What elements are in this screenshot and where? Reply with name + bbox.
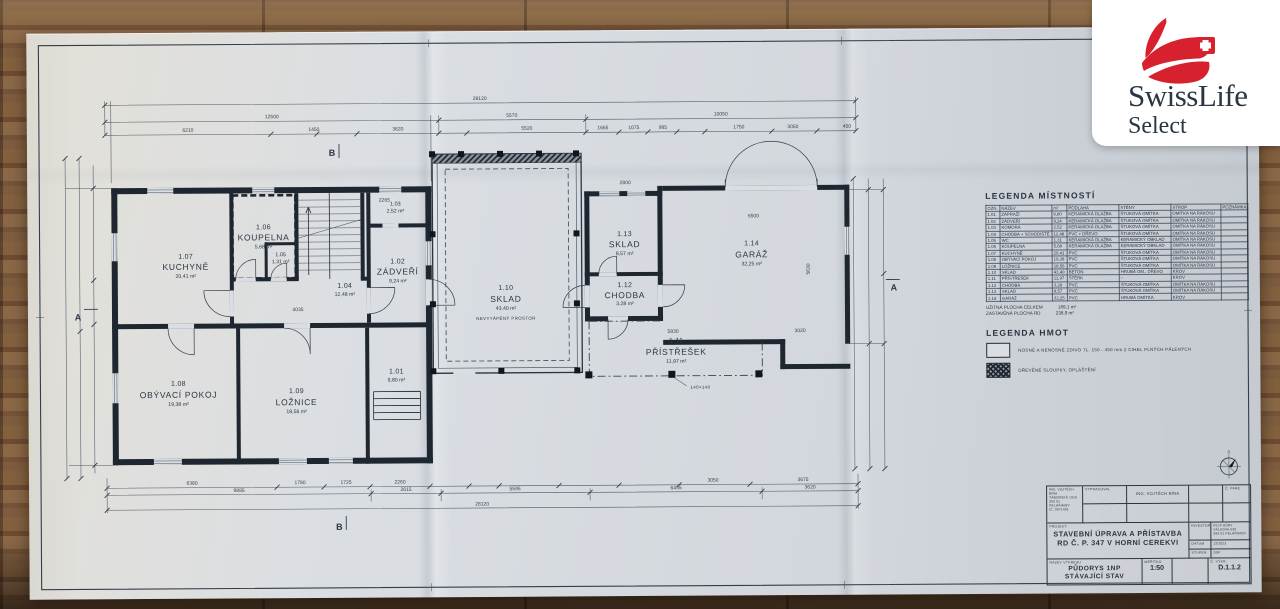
timber-hatch-swatch xyxy=(986,363,1010,378)
datum-label: DATUM xyxy=(1189,541,1211,550)
timber-columns xyxy=(429,150,580,374)
section-b-bottom: B xyxy=(336,522,343,532)
svg-text:9885: 9885 xyxy=(233,488,244,494)
scale-cell: MĚŘÍTKO 1:50 xyxy=(1143,559,1173,584)
svg-text:1,31 m²: 1,31 m² xyxy=(272,259,290,265)
svg-text:KOUPELNA: KOUPELNA xyxy=(238,232,290,242)
vypracoval-label: VYPRACOVAL xyxy=(1083,486,1127,504)
svg-text:GARÁŽ: GARÁŽ xyxy=(735,249,768,259)
datum-value: 12/2023 xyxy=(1211,540,1250,549)
author-box: ING. VOJTĚCH BÍNATÁBORSKÁ 1915393 01 PEL… xyxy=(1047,486,1083,523)
stupen-label: STUPEŇ xyxy=(1189,550,1211,559)
svg-text:9,24 m²: 9,24 m² xyxy=(389,278,407,284)
svg-text:5520: 5520 xyxy=(521,126,532,132)
title-block: ING. VOJTĚCH BÍNATÁBORSKÁ 1915393 01 PEL… xyxy=(1046,484,1252,585)
blueprint-sheet: 28120 12500 5570 10050 6210 1450 3620 55… xyxy=(26,26,1261,600)
svg-text:1.04: 1.04 xyxy=(337,283,352,290)
legend-rooms-table: OZN. NÁZEV m² PODLAHA STĚNY STROP POZNÁM… xyxy=(985,203,1249,301)
svg-text:1780: 1780 xyxy=(294,480,305,486)
svg-text:1665: 1665 xyxy=(597,125,608,131)
legend-room-row: 1.14 GARÁŽ 32,25 PVC HRUBÁ OMÍTKA KROV xyxy=(986,293,1248,301)
svg-text:1075: 1075 xyxy=(628,125,639,131)
north-compass-icon: S xyxy=(1217,449,1241,478)
svg-text:2260: 2260 xyxy=(394,479,405,485)
porch-steps xyxy=(373,391,420,419)
svg-text:SKLAD: SKLAD xyxy=(609,239,640,249)
svg-text:KUCHYNĚ: KUCHYNĚ xyxy=(162,262,209,272)
svg-text:1750: 1750 xyxy=(733,124,744,130)
garage-door-swings xyxy=(725,141,817,188)
svg-text:43,40 m²: 43,40 m² xyxy=(496,306,517,312)
project-cell: PROJEKT: STAVEBNÍ ÚPRAVA A PŘÍSTAVBA RD … xyxy=(1047,523,1189,560)
staircase xyxy=(298,193,361,279)
compass-north-label: S xyxy=(1227,449,1230,454)
drawing-name-cell: NÁZEV VÝKRESU PŮDORYS 1NP STÁVAJÍCÍ STAV xyxy=(1048,559,1143,585)
material-item-masonry: NOSNÉ A NENOSNÉ ZDIVO TL. 150 - 450 mm Z… xyxy=(986,341,1248,358)
svg-text:1.05: 1.05 xyxy=(275,252,286,258)
svg-text:1.09: 1.09 xyxy=(289,388,304,395)
shelter-columns xyxy=(585,370,762,378)
svg-text:3620: 3620 xyxy=(392,126,403,132)
swisslife-flag-icon xyxy=(1142,18,1215,84)
svg-text:1.06: 1.06 xyxy=(256,224,271,231)
masonry-swatch xyxy=(986,343,1010,358)
svg-text:5570: 5570 xyxy=(506,113,517,119)
svg-text:5830: 5830 xyxy=(668,329,679,335)
total-builtup-area: ZASTAVĚNÁ PLOCHA RD 238,9 m² xyxy=(986,310,1248,318)
column-size-note: 140×140 xyxy=(690,385,710,390)
svg-text:4035: 4035 xyxy=(292,307,303,313)
svg-text:450: 450 xyxy=(843,124,852,130)
svg-text:ZÁDVEŘÍ: ZÁDVEŘÍ xyxy=(377,266,419,276)
svg-text:12,48 m²: 12,48 m² xyxy=(335,292,356,298)
svg-text:20,41 m²: 20,41 m² xyxy=(176,274,197,280)
swisslife-logo: SwissLife Select xyxy=(1092,0,1280,146)
investor-value: FILIP HŮRYVÁLKOVA 630393 01 PELHŘIMOV xyxy=(1211,522,1250,540)
svg-text:2800: 2800 xyxy=(620,180,631,186)
svg-text:1.14: 1.14 xyxy=(744,240,759,247)
section-marks: B B A A xyxy=(74,140,902,533)
svg-text:5595: 5595 xyxy=(509,486,520,492)
legend-room-rows: 1.01 ZÁPRAŽÍ 9,80 KERAMICKÁ DLAŽBA ŠTUKO… xyxy=(986,210,1249,301)
svg-text:985: 985 xyxy=(659,125,668,131)
svg-text:12500: 12500 xyxy=(265,114,279,120)
photo-of-floor-plan: { "colors": { "accent_red": "#d7212e", "… xyxy=(0,0,1280,609)
svg-text:2615: 2615 xyxy=(400,487,411,493)
svg-text:1.10: 1.10 xyxy=(498,285,513,292)
projekt-line2: RD Č. P. 347 V HORNÍ CEREKVI xyxy=(1047,538,1188,548)
svg-text:LOŽNICE: LOŽNICE xyxy=(276,397,318,407)
old-house xyxy=(111,186,456,465)
pare-label: Č. PARÉ xyxy=(1223,485,1250,503)
svg-text:1.01: 1.01 xyxy=(389,368,404,375)
svg-text:3620: 3620 xyxy=(804,484,815,490)
investor-label: INVESTOR xyxy=(1189,523,1211,541)
svg-text:1.13: 1.13 xyxy=(617,231,632,238)
logo-brand-text: SwissLife xyxy=(1128,78,1248,113)
svg-text:3,28 m²: 3,28 m² xyxy=(616,301,634,307)
storage-building xyxy=(429,150,582,374)
svg-text:1725: 1725 xyxy=(340,480,351,486)
svg-text:1.08: 1.08 xyxy=(171,381,186,388)
legend-rooms-title: LEGENDA MÍSTNOSTÍ xyxy=(985,189,1247,201)
svg-text:5630: 5630 xyxy=(806,263,812,274)
svg-text:3050: 3050 xyxy=(707,478,718,484)
svg-text:32,25 m²: 32,25 m² xyxy=(741,261,762,267)
material-item-timber: DŘEVĚNÉ SLOUPKY, OPLÁŠTĚNÍ xyxy=(986,361,1248,378)
doors xyxy=(167,223,455,355)
cislo-value: D.1.1.2 xyxy=(1209,564,1251,571)
svg-text:2265: 2265 xyxy=(379,198,390,204)
logo-sub-text: Select xyxy=(1128,113,1187,139)
svg-text:11,97 m²: 11,97 m² xyxy=(666,359,686,365)
dim-bottom-total: 28120 xyxy=(475,501,489,507)
legend-materials-title: LEGENDA HMOT xyxy=(986,326,1248,338)
svg-text:1.12: 1.12 xyxy=(617,282,632,289)
svg-text:19,38 m²: 19,38 m² xyxy=(168,402,189,408)
stupen-value: DSP xyxy=(1211,549,1250,558)
svg-text:1450: 1450 xyxy=(308,127,319,133)
svg-text:6210: 6210 xyxy=(182,128,193,134)
section-b-top: B xyxy=(329,148,336,158)
nazev-line2: STÁVAJÍCÍ STAV xyxy=(1048,573,1142,582)
svg-text:5,68 m²: 5,68 m² xyxy=(255,244,273,250)
meritko-value: 1:50 xyxy=(1143,565,1172,572)
svg-text:2,52 m²: 2,52 m² xyxy=(387,208,405,214)
swisslife-select-logo-card: SwissLife Select xyxy=(1092,0,1280,146)
timber-wall-hatch xyxy=(432,153,581,163)
svg-text:6500: 6500 xyxy=(748,213,759,219)
svg-text:CHODBA: CHODBA xyxy=(605,290,646,300)
svg-text:18,56 m²: 18,56 m² xyxy=(286,409,307,415)
svg-text:3020: 3020 xyxy=(795,328,806,334)
svg-text:1.03: 1.03 xyxy=(390,201,401,207)
svg-text:3675: 3675 xyxy=(797,477,808,483)
svg-text:9,80 m²: 9,80 m² xyxy=(388,377,406,383)
svg-text:3050: 3050 xyxy=(787,124,798,130)
svg-text:1.07: 1.07 xyxy=(178,254,193,261)
vypracoval-value: ING. VOJTĚCH BÍNA xyxy=(1127,486,1189,504)
svg-text:SKLAD: SKLAD xyxy=(490,294,521,304)
svg-text:6380: 6380 xyxy=(186,481,197,487)
svg-text:6435: 6435 xyxy=(670,485,681,491)
drawing-number-cell: Č. VÝKR. D.1.1.2 xyxy=(1209,558,1251,583)
svg-text:10050: 10050 xyxy=(714,111,728,117)
section-a-right: A xyxy=(891,282,898,292)
svg-text:PŘÍSTŘEŠEK: PŘÍSTŘEŠEK xyxy=(646,347,707,357)
svg-text:8,57 m²: 8,57 m² xyxy=(616,251,634,257)
svg-text:1.02: 1.02 xyxy=(390,258,405,265)
svg-text:OBÝVACÍ POKOJ: OBÝVACÍ POKOJ xyxy=(140,390,217,400)
svg-text:1.11: 1.11 xyxy=(669,338,683,345)
svg-text:NEVYTÁPĚNÝ PROSTOR: NEVYTÁPĚNÝ PROSTOR xyxy=(476,316,536,321)
legend-mistnosti: LEGENDA MÍSTNOSTÍ OZN. NÁZEV m² PODLAHA … xyxy=(985,189,1248,377)
section-a-left: A xyxy=(75,312,82,322)
legend-totals: UŽITNÁ PLOCHA CELKEM 189,1 m² ZASTAVĚNÁ … xyxy=(986,303,1248,318)
dim-top-total: 28120 xyxy=(473,96,487,102)
